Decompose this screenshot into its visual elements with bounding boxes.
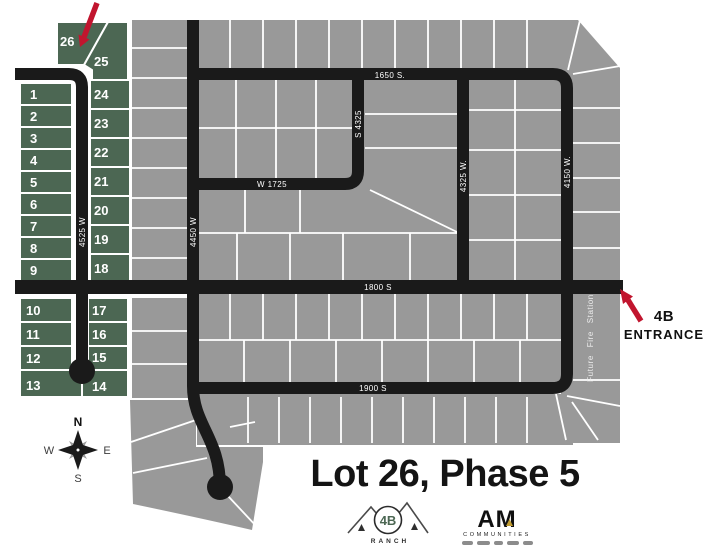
compass-south-label: S xyxy=(74,473,81,485)
ranch-logo-tree-right xyxy=(411,523,418,530)
ranch-logo-tree-left xyxy=(358,524,365,531)
lot-label-1: 1 xyxy=(30,87,37,102)
ranch-logo: 4B RANCH xyxy=(348,503,428,545)
lot-label-19: 19 xyxy=(94,232,108,247)
cul-de-sac-4450-w xyxy=(207,474,233,500)
compass-east-label: E xyxy=(103,445,110,457)
lot-label-14: 14 xyxy=(92,379,107,394)
lot-label-20: 20 xyxy=(94,203,108,218)
lot-6 xyxy=(20,193,72,215)
partner-logo-2 xyxy=(477,541,490,545)
compass-rose: N W E S xyxy=(44,415,111,485)
street-label-4325-w: 4325 W. xyxy=(459,160,468,192)
lot-label-18: 18 xyxy=(94,261,108,276)
lot-9 xyxy=(20,259,72,281)
street-label-1650-s: 1650 S. xyxy=(375,71,405,80)
street-label-4450-w: 4450 W xyxy=(189,217,198,247)
lot-label-15: 15 xyxy=(92,350,106,365)
lot-5 xyxy=(20,171,72,193)
entrance-arrow-shaft xyxy=(628,300,641,321)
compass-hub xyxy=(76,448,80,452)
street-label-4525-w: 4525 W xyxy=(78,217,87,247)
lot-label-23: 23 xyxy=(94,116,108,131)
compass-north-label: N xyxy=(74,415,83,429)
lot-label-21: 21 xyxy=(94,174,108,189)
plat-map-page: 1650 S. W 1725 1800 S 1900 S 4525 W 4450… xyxy=(0,0,720,556)
lot-label-25: 25 xyxy=(94,54,108,69)
lot-1 xyxy=(20,83,72,105)
plat-map: 1650 S. W 1725 1800 S 1900 S 4525 W 4450… xyxy=(0,0,720,556)
lot-label-10: 10 xyxy=(26,303,40,318)
street-label-s-4325: S 4325 xyxy=(354,110,363,138)
entrance-label-line2: ENTRANCE xyxy=(624,327,704,342)
am-logo-name: AM xyxy=(477,506,516,533)
street-label-4150-w: 4150 W. xyxy=(563,156,572,188)
lot-8 xyxy=(20,237,72,259)
lot-3 xyxy=(20,127,72,149)
lot-label-17: 17 xyxy=(92,303,106,318)
partner-logo-5 xyxy=(523,541,533,545)
lot-label-12: 12 xyxy=(26,351,40,366)
lot-label-16: 16 xyxy=(92,327,106,342)
am-logo-sub: COMMUNITIES xyxy=(463,532,531,538)
street-label-1900-s: 1900 S xyxy=(359,384,387,393)
lot-7 xyxy=(20,215,72,237)
entrance-label-line1: 4B xyxy=(654,308,674,325)
lot-label-2: 2 xyxy=(30,109,37,124)
lot-label-5: 5 xyxy=(30,175,37,190)
lot-label-13: 13 xyxy=(26,378,40,393)
lot-label-11: 11 xyxy=(26,327,40,342)
lot-label-8: 8 xyxy=(30,241,37,256)
partner-logo-3 xyxy=(494,541,503,545)
lot-label-4: 4 xyxy=(30,153,38,168)
am-partner-logos xyxy=(462,541,533,545)
lot-label-24: 24 xyxy=(94,87,109,102)
lot-label-6: 6 xyxy=(30,197,37,212)
lot-label-9: 9 xyxy=(30,263,37,278)
street-label-w-1725: W 1725 xyxy=(257,180,287,189)
ranch-logo-name: 4B xyxy=(380,513,397,528)
partner-logo-4 xyxy=(507,541,519,545)
lot-label-3: 3 xyxy=(30,131,37,146)
lot-label-7: 7 xyxy=(30,219,37,234)
lot-4 xyxy=(20,149,72,171)
entrance-pointer-arrow xyxy=(620,289,641,321)
lot-label-26: 26 xyxy=(60,34,74,49)
partner-logo-1 xyxy=(462,541,473,545)
street-label-1800-s: 1800 S xyxy=(364,283,392,292)
lot-label-22: 22 xyxy=(94,145,108,160)
page-title: Lot 26, Phase 5 xyxy=(310,453,580,495)
compass-west-label: W xyxy=(44,445,55,457)
future-fire-station-label: Future Fire Station xyxy=(586,294,595,382)
lot-2 xyxy=(20,105,72,127)
am-communities-logo: AM COMMUNITIES xyxy=(462,506,533,545)
ranch-logo-sub: RANCH xyxy=(371,538,409,545)
